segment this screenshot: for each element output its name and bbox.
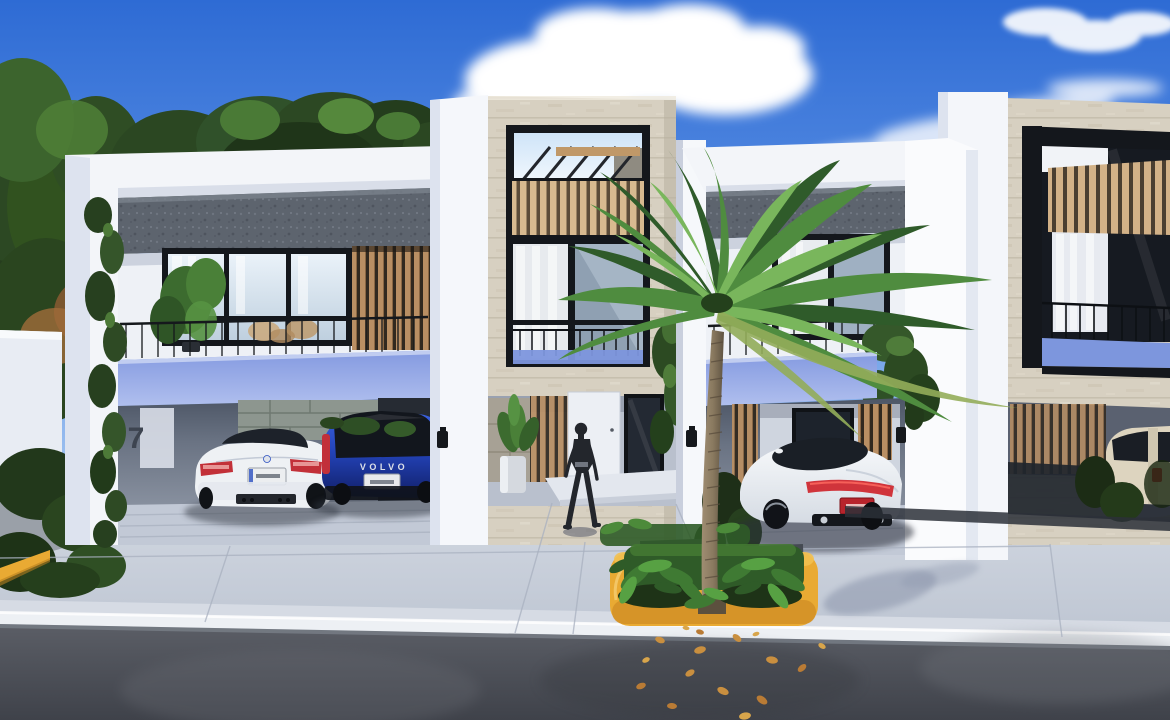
volvo-badge: VOLVO — [360, 462, 408, 472]
unit1-wood-slats — [352, 246, 430, 350]
unit-2 — [430, 95, 692, 545]
unit4-slat-band — [1048, 160, 1170, 235]
wall-lamp — [896, 427, 906, 443]
unit-1: VOLVO 7 — [65, 146, 453, 548]
unit2-rooftop-terrace — [506, 125, 650, 237]
architectural-rendering: VOLVO 7 — [0, 0, 1170, 720]
entrance-wood-slats — [530, 396, 568, 482]
unit4-carport — [1008, 402, 1170, 522]
scene-canvas: VOLVO 7 — [0, 0, 1170, 720]
house-number: 7 — [128, 422, 145, 455]
unit4-opening — [1022, 126, 1170, 378]
